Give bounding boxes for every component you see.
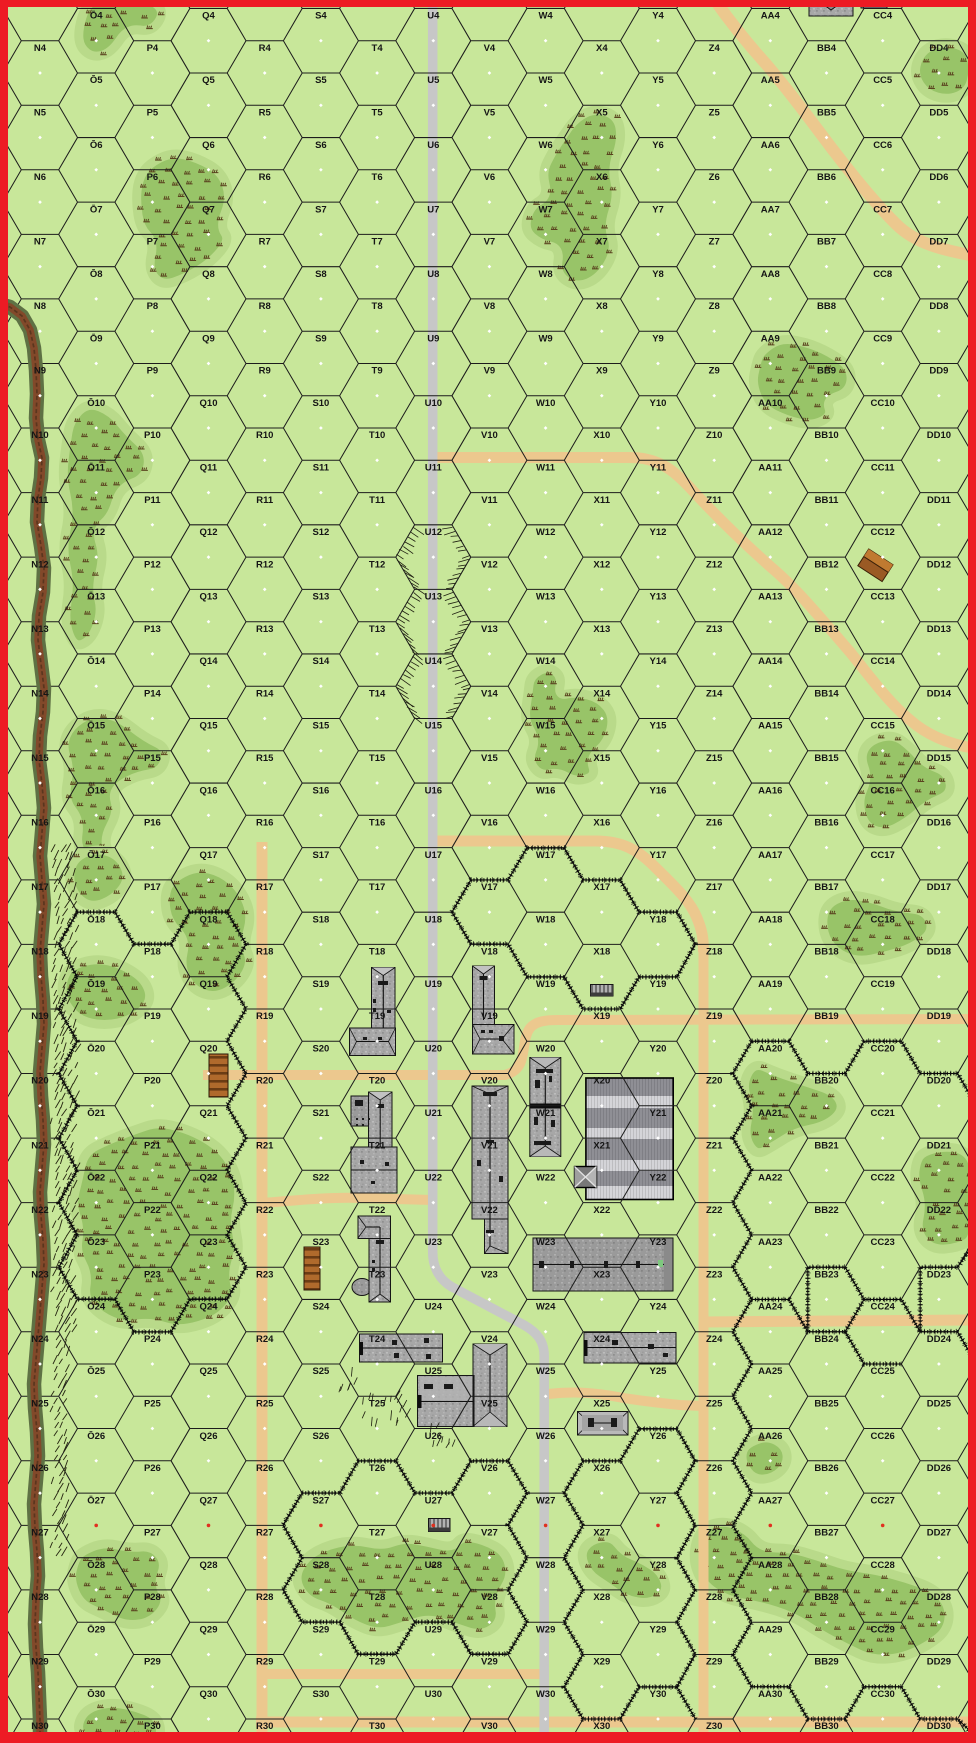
svg-text:S5: S5	[315, 75, 327, 86]
svg-text:N10: N10	[31, 430, 48, 441]
svg-text:V4: V4	[484, 43, 496, 54]
svg-text:Y17: Y17	[650, 850, 667, 861]
svg-text:R16: R16	[256, 818, 273, 829]
svg-text:BB19: BB19	[814, 1011, 838, 1022]
svg-text:Ō19: Ō19	[87, 979, 105, 990]
svg-text:X26: X26	[593, 1463, 610, 1474]
svg-text:DD28: DD28	[927, 1592, 951, 1603]
svg-text:Y20: Y20	[650, 1044, 667, 1055]
svg-text:Z16: Z16	[706, 818, 722, 829]
svg-text:R5: R5	[259, 108, 272, 119]
svg-text:Z28: Z28	[706, 1592, 722, 1603]
svg-text:BB14: BB14	[814, 688, 839, 699]
svg-text:R10: R10	[256, 430, 273, 441]
svg-text:R21: R21	[256, 1140, 274, 1151]
svg-text:AA30: AA30	[758, 1689, 782, 1700]
svg-text:S8: S8	[315, 269, 327, 280]
svg-text:Q18: Q18	[200, 914, 218, 925]
svg-text:Z13: Z13	[706, 624, 722, 635]
svg-text:Y30: Y30	[650, 1689, 667, 1700]
svg-text:W30: W30	[536, 1689, 556, 1700]
svg-text:Q30: Q30	[200, 1689, 218, 1700]
svg-text:CC27: CC27	[871, 1495, 895, 1506]
svg-text:X10: X10	[593, 430, 610, 441]
svg-text:DD23: DD23	[927, 1269, 951, 1280]
svg-text:W14: W14	[536, 656, 556, 667]
svg-text:V14: V14	[481, 688, 499, 699]
svg-text:Ō29: Ō29	[87, 1624, 105, 1635]
svg-text:W24: W24	[536, 1302, 556, 1313]
svg-text:N28: N28	[31, 1592, 48, 1603]
svg-text:Z9: Z9	[709, 366, 720, 377]
svg-text:Q19: Q19	[200, 979, 218, 990]
svg-text:S21: S21	[312, 1108, 330, 1119]
svg-text:BB29: BB29	[814, 1657, 838, 1668]
svg-text:Y7: Y7	[652, 204, 664, 215]
svg-text:CC25: CC25	[871, 1366, 896, 1377]
svg-text:Ō16: Ō16	[87, 785, 105, 796]
svg-text:Y10: Y10	[650, 398, 667, 409]
svg-text:T5: T5	[372, 108, 384, 119]
svg-text:N25: N25	[31, 1399, 49, 1410]
svg-text:R29: R29	[256, 1657, 273, 1668]
svg-text:W6: W6	[538, 140, 552, 151]
svg-text:T19: T19	[369, 1011, 385, 1022]
svg-text:Z21: Z21	[706, 1140, 723, 1151]
svg-text:Z27: Z27	[706, 1528, 722, 1539]
svg-text:X19: X19	[593, 1011, 610, 1022]
svg-text:P26: P26	[144, 1463, 161, 1474]
svg-text:DD11: DD11	[927, 495, 951, 506]
svg-text:BB18: BB18	[814, 947, 838, 958]
svg-text:CC20: CC20	[871, 1044, 895, 1055]
svg-text:Y6: Y6	[652, 140, 664, 151]
svg-text:BB26: BB26	[814, 1463, 838, 1474]
svg-text:DD14: DD14	[927, 688, 952, 699]
svg-text:N22: N22	[31, 1205, 48, 1216]
svg-text:BB16: BB16	[814, 818, 838, 829]
svg-text:AA9: AA9	[761, 333, 780, 344]
svg-text:Y12: Y12	[650, 527, 667, 538]
svg-text:N9: N9	[34, 366, 46, 377]
svg-text:Ō8: Ō8	[90, 269, 103, 280]
svg-text:BB30: BB30	[814, 1721, 838, 1732]
svg-text:BB21: BB21	[814, 1140, 839, 1151]
svg-text:S16: S16	[312, 785, 329, 796]
svg-text:Q22: Q22	[200, 1173, 218, 1184]
svg-text:U28: U28	[425, 1560, 442, 1571]
svg-text:W29: W29	[536, 1624, 556, 1635]
svg-text:N8: N8	[34, 301, 46, 312]
svg-text:R25: R25	[256, 1399, 274, 1410]
svg-text:N15: N15	[31, 753, 49, 764]
svg-text:U25: U25	[425, 1366, 443, 1377]
svg-text:V29: V29	[481, 1657, 498, 1668]
svg-text:Ō23: Ō23	[87, 1237, 105, 1248]
svg-text:Ō17: Ō17	[87, 850, 105, 861]
svg-text:N7: N7	[34, 237, 46, 248]
svg-text:Q4: Q4	[202, 11, 215, 22]
svg-text:S13: S13	[312, 592, 329, 603]
svg-text:U22: U22	[425, 1173, 442, 1184]
svg-text:T6: T6	[372, 172, 383, 183]
svg-text:U5: U5	[427, 75, 440, 86]
svg-text:N23: N23	[31, 1269, 48, 1280]
svg-text:W22: W22	[536, 1173, 556, 1184]
svg-text:Ō6: Ō6	[90, 140, 103, 151]
svg-text:Ō20: Ō20	[87, 1044, 105, 1055]
svg-text:W28: W28	[536, 1560, 556, 1571]
svg-text:P10: P10	[144, 430, 161, 441]
svg-text:Z10: Z10	[706, 430, 722, 441]
svg-text:W17: W17	[536, 850, 556, 861]
svg-text:AA24: AA24	[758, 1302, 783, 1313]
svg-text:P19: P19	[144, 1011, 161, 1022]
svg-text:V27: V27	[481, 1528, 498, 1539]
svg-text:U15: U15	[425, 721, 443, 732]
svg-text:Z11: Z11	[706, 495, 723, 506]
svg-text:P16: P16	[144, 818, 161, 829]
svg-text:BB24: BB24	[814, 1334, 839, 1345]
svg-text:Z18: Z18	[706, 947, 722, 958]
svg-text:N17: N17	[31, 882, 48, 893]
svg-text:W4: W4	[538, 11, 553, 22]
svg-text:U24: U24	[425, 1302, 443, 1313]
svg-text:Ō21: Ō21	[87, 1108, 106, 1119]
svg-text:N11: N11	[32, 495, 50, 506]
svg-text:CC24: CC24	[871, 1302, 896, 1313]
svg-text:V22: V22	[481, 1205, 498, 1216]
svg-text:R8: R8	[259, 301, 271, 312]
svg-text:P17: P17	[144, 882, 161, 893]
svg-text:U23: U23	[425, 1237, 442, 1248]
svg-text:Z17: Z17	[706, 882, 722, 893]
svg-text:U14: U14	[425, 656, 443, 667]
svg-text:P28: P28	[144, 1592, 161, 1603]
svg-text:N30: N30	[31, 1721, 48, 1732]
svg-text:U11: U11	[425, 463, 443, 474]
svg-text:AA6: AA6	[761, 140, 780, 151]
svg-text:T10: T10	[369, 430, 385, 441]
svg-text:S18: S18	[312, 914, 329, 925]
svg-text:N16: N16	[31, 818, 48, 829]
svg-text:P7: P7	[147, 237, 159, 248]
svg-text:DD12: DD12	[927, 559, 951, 570]
svg-text:V15: V15	[481, 753, 499, 764]
svg-text:X24: X24	[593, 1334, 611, 1345]
svg-text:R20: R20	[256, 1076, 273, 1087]
svg-text:W5: W5	[538, 75, 553, 86]
svg-text:Ō10: Ō10	[87, 398, 105, 409]
svg-text:W13: W13	[536, 592, 556, 603]
svg-text:BB25: BB25	[814, 1399, 839, 1410]
svg-text:CC11: CC11	[871, 463, 895, 474]
svg-text:Z8: Z8	[709, 301, 720, 312]
svg-text:V8: V8	[484, 301, 496, 312]
svg-text:CC10: CC10	[871, 398, 895, 409]
svg-text:Y22: Y22	[650, 1173, 667, 1184]
svg-text:T15: T15	[369, 753, 386, 764]
svg-text:W11: W11	[536, 463, 556, 474]
svg-text:AA16: AA16	[758, 785, 782, 796]
svg-text:Q14: Q14	[200, 656, 219, 667]
svg-text:AA21: AA21	[758, 1108, 783, 1119]
svg-text:Z15: Z15	[706, 753, 723, 764]
svg-text:R17: R17	[256, 882, 273, 893]
svg-text:AA15: AA15	[758, 721, 783, 732]
svg-text:T17: T17	[369, 882, 385, 893]
svg-text:U27: U27	[425, 1495, 442, 1506]
svg-text:Ō15: Ō15	[87, 721, 106, 732]
svg-text:Y21: Y21	[650, 1108, 668, 1119]
svg-text:S28: S28	[312, 1560, 329, 1571]
svg-text:P6: P6	[147, 172, 159, 183]
svg-text:P29: P29	[144, 1657, 161, 1668]
svg-text:Ō30: Ō30	[87, 1689, 105, 1700]
svg-text:AA29: AA29	[758, 1624, 782, 1635]
svg-text:DD20: DD20	[927, 1076, 951, 1087]
svg-text:Q20: Q20	[200, 1044, 218, 1055]
svg-text:T27: T27	[369, 1528, 385, 1539]
svg-text:CC22: CC22	[871, 1173, 895, 1184]
svg-text:DD18: DD18	[927, 947, 951, 958]
svg-text:P12: P12	[144, 559, 161, 570]
svg-text:W19: W19	[536, 979, 556, 990]
svg-text:CC15: CC15	[871, 721, 896, 732]
svg-text:V23: V23	[481, 1269, 498, 1280]
svg-text:BB22: BB22	[814, 1205, 838, 1216]
svg-text:X15: X15	[593, 753, 611, 764]
svg-text:Y28: Y28	[650, 1560, 667, 1571]
svg-text:DD9: DD9	[929, 366, 948, 377]
svg-text:Z30: Z30	[706, 1721, 722, 1732]
svg-text:Q5: Q5	[202, 75, 215, 86]
svg-text:CC4: CC4	[873, 11, 893, 22]
svg-text:CC19: CC19	[871, 979, 895, 990]
svg-text:DD26: DD26	[927, 1463, 951, 1474]
svg-text:Y25: Y25	[650, 1366, 668, 1377]
svg-text:U19: U19	[425, 979, 442, 990]
svg-text:T12: T12	[369, 559, 385, 570]
svg-text:R4: R4	[259, 43, 272, 54]
svg-text:N20: N20	[31, 1076, 48, 1087]
svg-text:Y18: Y18	[650, 914, 667, 925]
svg-text:CC28: CC28	[871, 1560, 895, 1571]
svg-text:S27: S27	[312, 1495, 329, 1506]
svg-text:U30: U30	[425, 1689, 442, 1700]
svg-text:R19: R19	[256, 1011, 273, 1022]
svg-text:U29: U29	[425, 1624, 442, 1635]
svg-text:T20: T20	[369, 1076, 385, 1087]
svg-text:U13: U13	[425, 592, 442, 603]
svg-text:X5: X5	[596, 108, 608, 119]
svg-text:S9: S9	[315, 333, 327, 344]
svg-text:U12: U12	[425, 527, 442, 538]
svg-text:Q7: Q7	[202, 204, 215, 215]
svg-text:AA13: AA13	[758, 592, 782, 603]
svg-text:AA11: AA11	[758, 463, 782, 474]
svg-text:X28: X28	[593, 1592, 610, 1603]
svg-text:Y19: Y19	[650, 979, 667, 990]
svg-text:X8: X8	[596, 301, 608, 312]
svg-text:AA14: AA14	[758, 656, 783, 667]
svg-text:CC16: CC16	[871, 785, 895, 796]
svg-text:R26: R26	[256, 1463, 273, 1474]
svg-text:Z12: Z12	[706, 559, 722, 570]
svg-text:P24: P24	[144, 1334, 162, 1345]
svg-text:P9: P9	[147, 366, 159, 377]
svg-text:T16: T16	[369, 818, 385, 829]
svg-text:U7: U7	[427, 204, 439, 215]
svg-text:Y26: Y26	[650, 1431, 667, 1442]
svg-text:V20: V20	[481, 1076, 498, 1087]
svg-text:CC7: CC7	[873, 204, 892, 215]
svg-text:BB7: BB7	[817, 237, 836, 248]
svg-text:Q13: Q13	[200, 592, 218, 603]
svg-text:T13: T13	[369, 624, 385, 635]
svg-text:CC26: CC26	[871, 1431, 895, 1442]
svg-text:DD17: DD17	[927, 882, 951, 893]
svg-text:P23: P23	[144, 1269, 161, 1280]
svg-text:N5: N5	[34, 108, 47, 119]
svg-text:S17: S17	[312, 850, 329, 861]
svg-text:S7: S7	[315, 204, 327, 215]
svg-text:U8: U8	[427, 269, 439, 280]
svg-text:V26: V26	[481, 1463, 498, 1474]
svg-text:Y11: Y11	[650, 463, 667, 474]
svg-text:CC17: CC17	[871, 850, 895, 861]
svg-text:Q17: Q17	[200, 850, 218, 861]
svg-text:S11: S11	[313, 463, 330, 474]
svg-text:W12: W12	[536, 527, 556, 538]
svg-text:R18: R18	[256, 947, 273, 958]
svg-text:R14: R14	[256, 688, 274, 699]
svg-text:U4: U4	[427, 11, 440, 22]
svg-text:R27: R27	[256, 1528, 273, 1539]
svg-text:Q24: Q24	[200, 1302, 219, 1313]
svg-text:P14: P14	[144, 688, 162, 699]
svg-text:AA4: AA4	[761, 11, 781, 22]
svg-text:S26: S26	[312, 1431, 329, 1442]
svg-text:X23: X23	[593, 1269, 610, 1280]
svg-text:V30: V30	[481, 1721, 498, 1732]
svg-text:V11: V11	[481, 495, 498, 506]
svg-text:BB10: BB10	[814, 430, 838, 441]
svg-text:V5: V5	[484, 108, 496, 119]
svg-text:Ō4: Ō4	[90, 11, 103, 22]
svg-text:DD5: DD5	[929, 108, 949, 119]
svg-text:T28: T28	[369, 1592, 385, 1603]
svg-text:N6: N6	[34, 172, 46, 183]
svg-text:P21: P21	[144, 1140, 162, 1151]
svg-text:BB9: BB9	[817, 366, 836, 377]
svg-text:Q21: Q21	[200, 1108, 219, 1119]
svg-text:Ō25: Ō25	[87, 1366, 106, 1377]
svg-text:P5: P5	[147, 108, 159, 119]
svg-text:T24: T24	[369, 1334, 386, 1345]
svg-text:V6: V6	[484, 172, 496, 183]
svg-text:AA12: AA12	[758, 527, 782, 538]
svg-text:Ō5: Ō5	[90, 75, 103, 86]
svg-text:DD19: DD19	[927, 1011, 951, 1022]
svg-text:U9: U9	[427, 333, 439, 344]
svg-text:R22: R22	[256, 1205, 273, 1216]
svg-text:V12: V12	[481, 559, 498, 570]
svg-text:X14: X14	[593, 688, 611, 699]
svg-text:X30: X30	[593, 1721, 610, 1732]
svg-text:N4: N4	[34, 43, 47, 54]
svg-text:S23: S23	[312, 1237, 329, 1248]
svg-text:Y4: Y4	[652, 11, 664, 22]
svg-text:P22: P22	[144, 1205, 161, 1216]
svg-text:P11: P11	[144, 495, 161, 506]
svg-text:Y13: Y13	[650, 592, 667, 603]
svg-text:AA8: AA8	[761, 269, 780, 280]
svg-text:V16: V16	[481, 818, 498, 829]
svg-text:Y27: Y27	[650, 1495, 667, 1506]
svg-text:AA19: AA19	[758, 979, 782, 990]
svg-text:P30: P30	[144, 1721, 161, 1732]
svg-text:CC14: CC14	[871, 656, 896, 667]
svg-text:X22: X22	[593, 1205, 610, 1216]
svg-text:CC5: CC5	[873, 75, 893, 86]
svg-text:CC29: CC29	[871, 1624, 895, 1635]
svg-text:DD27: DD27	[927, 1528, 951, 1539]
svg-text:S20: S20	[312, 1044, 329, 1055]
svg-text:V28: V28	[481, 1592, 498, 1603]
svg-text:R11: R11	[256, 495, 274, 506]
svg-text:N27: N27	[31, 1528, 48, 1539]
svg-text:V21: V21	[481, 1140, 499, 1151]
svg-text:X11: X11	[594, 495, 611, 506]
svg-text:Ō26: Ō26	[87, 1431, 105, 1442]
svg-text:Z4: Z4	[709, 43, 721, 54]
svg-text:T18: T18	[369, 947, 385, 958]
svg-text:R23: R23	[256, 1269, 273, 1280]
svg-text:V13: V13	[481, 624, 498, 635]
svg-text:V7: V7	[484, 237, 496, 248]
svg-text:W7: W7	[538, 204, 552, 215]
svg-text:Z20: Z20	[706, 1076, 722, 1087]
svg-text:T11: T11	[369, 495, 386, 506]
svg-text:R30: R30	[256, 1721, 273, 1732]
svg-text:T9: T9	[372, 366, 383, 377]
svg-text:DD16: DD16	[927, 818, 951, 829]
svg-text:Z24: Z24	[706, 1334, 723, 1345]
svg-text:N18: N18	[31, 947, 48, 958]
svg-text:W23: W23	[536, 1237, 556, 1248]
svg-text:BB20: BB20	[814, 1076, 838, 1087]
svg-text:Q8: Q8	[202, 269, 215, 280]
svg-text:CC12: CC12	[871, 527, 895, 538]
svg-text:S10: S10	[312, 398, 329, 409]
svg-text:DD22: DD22	[927, 1205, 951, 1216]
svg-text:CC18: CC18	[871, 914, 895, 925]
svg-text:W25: W25	[536, 1366, 556, 1377]
svg-text:N29: N29	[31, 1657, 48, 1668]
svg-text:S6: S6	[315, 140, 327, 151]
svg-text:P25: P25	[144, 1399, 162, 1410]
svg-text:V9: V9	[484, 366, 496, 377]
svg-text:T22: T22	[369, 1205, 385, 1216]
svg-text:P8: P8	[147, 301, 159, 312]
svg-text:T21: T21	[369, 1140, 386, 1151]
svg-text:AA17: AA17	[758, 850, 782, 861]
svg-text:R24: R24	[256, 1334, 274, 1345]
svg-text:S19: S19	[312, 979, 329, 990]
svg-text:W26: W26	[536, 1431, 556, 1442]
svg-text:S24: S24	[312, 1302, 330, 1313]
